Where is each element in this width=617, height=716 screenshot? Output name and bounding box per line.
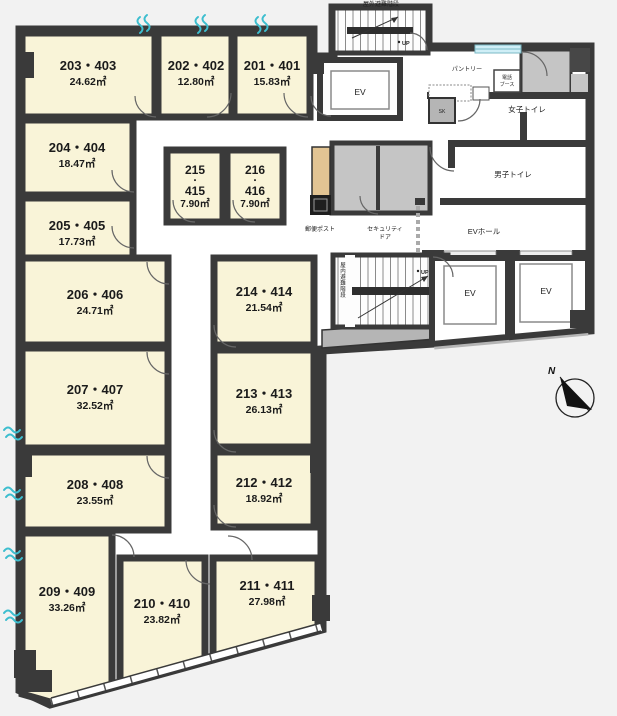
svg-text:203・403: 203・403 (60, 58, 116, 73)
floor-plan-svg: 電話 ブース SK UP 屋外避難階段 UP 屋内避難階段 EV EV (0, 0, 617, 716)
security-door-label-2: ドア (379, 234, 391, 241)
svg-text:208・408: 208・408 (67, 477, 123, 492)
mail-post-cabinet (312, 147, 330, 197)
svg-text:212・412: 212・412 (236, 475, 292, 490)
svg-text:24.71㎡: 24.71㎡ (77, 304, 114, 317)
svg-text:214・414: 214・414 (236, 284, 293, 299)
room-207-407: 207・407 32.52㎡ (22, 348, 168, 448)
svg-text:18.92㎡: 18.92㎡ (246, 492, 283, 505)
svg-text:204・404: 204・404 (49, 140, 106, 155)
window-strip-top (475, 45, 521, 53)
svg-text:17.73㎡: 17.73㎡ (59, 235, 96, 248)
svg-text:202・402: 202・402 (168, 58, 224, 73)
svg-text:416: 416 (245, 184, 265, 198)
mail-post-label: 郵便ポスト (305, 225, 335, 233)
svg-text:24.62㎡: 24.62㎡ (70, 75, 107, 88)
svg-text:211・411: 211・411 (240, 578, 295, 593)
svg-text:23.82㎡: 23.82㎡ (144, 613, 181, 626)
outdoor-stairs-up-label: UP (402, 41, 410, 47)
svg-text:206・406: 206・406 (67, 287, 123, 302)
room-214-414: 214・414 21.54㎡ (214, 258, 314, 345)
pantry-sink (473, 87, 489, 100)
indoor-stairs-label: 屋内避難階段 (339, 262, 346, 299)
mens-toilet-label: 男子トイレ (494, 170, 532, 179)
svg-text:7.90㎡: 7.90㎡ (180, 197, 209, 210)
elevator-1: EV (432, 258, 508, 344)
elevator-2-label: EV (540, 286, 552, 296)
security-door-label-1: セキュリティ (367, 226, 403, 233)
north-arrow-icon: N (548, 366, 594, 417)
pillar-topright (570, 48, 590, 72)
outdoor-stairs-label: 屋外避難階段 (363, 0, 399, 8)
svg-text:32.52㎡: 32.52㎡ (77, 399, 114, 412)
room-203-403: 203・403 24.62㎡ (22, 33, 155, 117)
sk-room: SK (429, 98, 455, 123)
elevator-upper-label: EV (354, 87, 366, 97)
phone-booth: 電話 ブース (494, 70, 520, 92)
svg-text:205・405: 205・405 (49, 218, 105, 233)
svg-text:415: 415 (185, 184, 205, 198)
floor-plan-canvas: 電話 ブース SK UP 屋外避難階段 UP 屋内避難階段 EV EV (0, 0, 617, 716)
room-202-402: 202・402 12.80㎡ (158, 33, 232, 117)
svg-text:207・407: 207・407 (67, 382, 123, 397)
svg-text:216: 216 (245, 163, 265, 177)
room-201-401: 201・401 15.83㎡ (234, 33, 310, 117)
room-208-408: 208・408 23.55㎡ (22, 452, 168, 530)
svg-text:215: 215 (185, 163, 205, 177)
phone-booth-label-1: 電話 (502, 74, 512, 81)
elevator-upper: EV (312, 58, 400, 118)
room-212-412: 212・412 18.92㎡ (214, 452, 314, 527)
svg-text:21.54㎡: 21.54㎡ (246, 301, 283, 314)
phone-booth-label-2: ブース (500, 81, 515, 88)
svg-text:201・401: 201・401 (244, 58, 300, 73)
north-label: N (548, 366, 556, 377)
mail-post-box (310, 195, 331, 215)
svg-text:213・413: 213・413 (236, 386, 292, 401)
svg-text:33.26㎡: 33.26㎡ (49, 601, 86, 614)
outdoor-stairs: UP (333, 8, 428, 53)
utility-strip-right (571, 74, 588, 94)
elevator-2: EV (512, 258, 588, 337)
pantry-label: パントリー (452, 66, 482, 73)
utility-room-topright (521, 50, 571, 97)
svg-text:12.80㎡: 12.80㎡ (178, 75, 215, 88)
svg-text:7.90㎡: 7.90㎡ (240, 197, 269, 210)
womens-toilet-label: 女子トイレ (508, 104, 546, 114)
svg-text:209・409: 209・409 (39, 584, 95, 599)
svg-text:23.55㎡: 23.55㎡ (77, 494, 114, 507)
ev-hall-label: EVホール (468, 227, 501, 236)
indoor-stairs-up-label: UP (421, 270, 429, 276)
sk-label: SK (439, 109, 446, 115)
room-206-406: 206・406 24.71㎡ (22, 258, 168, 345)
svg-text:18.47㎡: 18.47㎡ (59, 157, 96, 170)
svg-text:210・410: 210・410 (134, 596, 190, 611)
room-213-413: 213・413 26.13㎡ (214, 350, 314, 447)
svg-text:26.13㎡: 26.13㎡ (246, 403, 283, 416)
svg-text:15.83㎡: 15.83㎡ (254, 75, 291, 88)
elevator-1-label: EV (464, 288, 476, 298)
svg-text:27.98㎡: 27.98㎡ (249, 595, 286, 608)
